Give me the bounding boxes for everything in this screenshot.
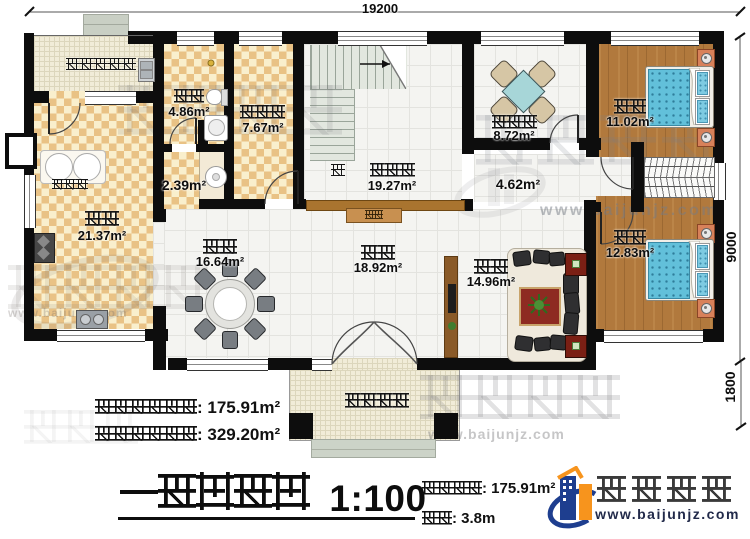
svg-text:1800: 1800 bbox=[722, 371, 738, 402]
svg-text:9000: 9000 bbox=[723, 231, 739, 262]
